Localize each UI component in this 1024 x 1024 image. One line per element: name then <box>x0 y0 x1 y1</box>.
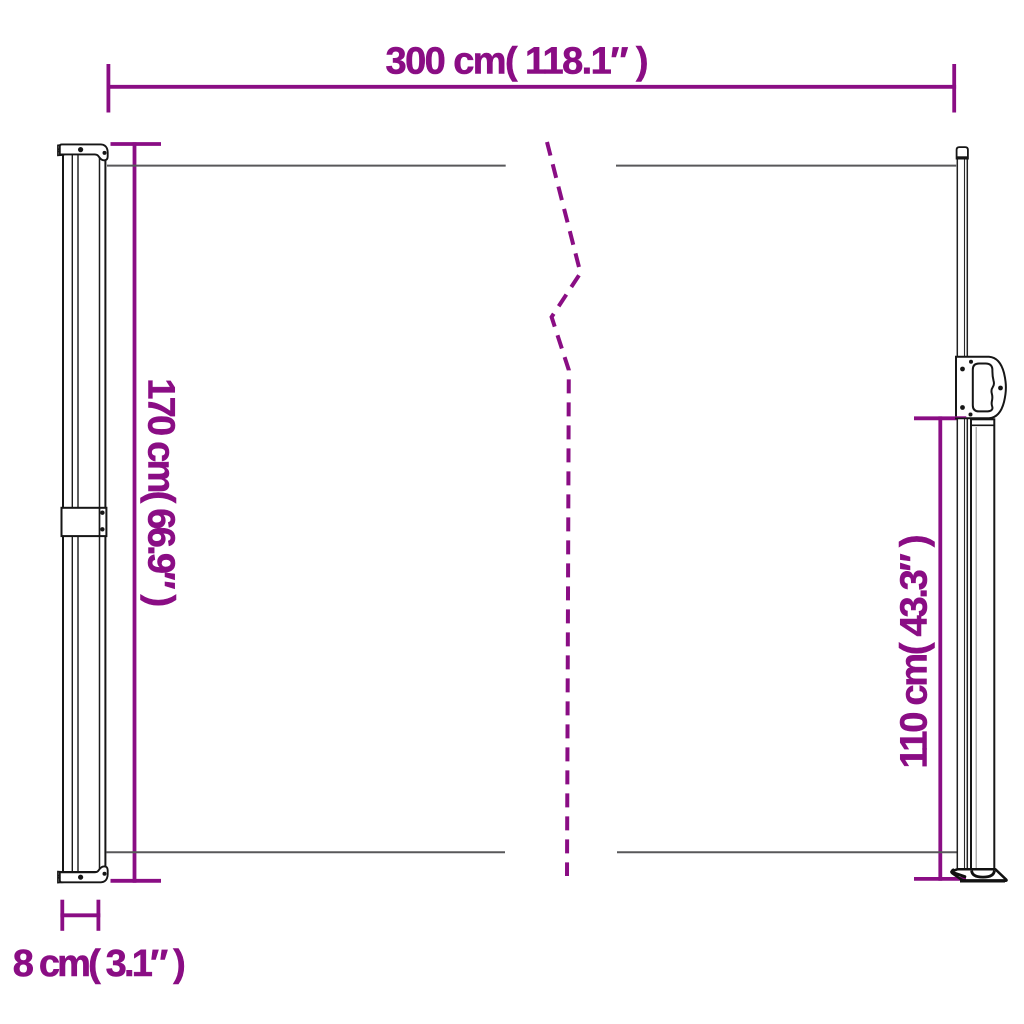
svg-text:170 cm( 66.9″ ): 170 cm( 66.9″ ) <box>140 378 182 607</box>
svg-text:110 cm( 43.3″ ): 110 cm( 43.3″ ) <box>894 535 936 769</box>
svg-text:8 cm( 3.1″ ): 8 cm( 3.1″ ) <box>13 943 186 985</box>
svg-text:300 cm( 118.1″ ): 300 cm( 118.1″ ) <box>386 41 649 83</box>
